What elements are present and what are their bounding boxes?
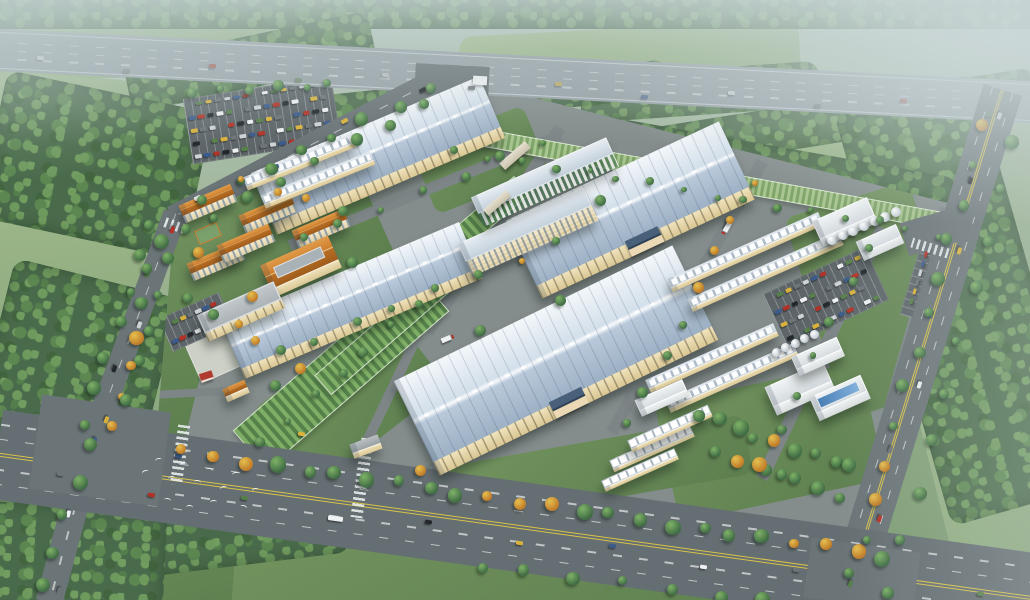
tree — [144, 220, 155, 231]
tree — [514, 498, 526, 510]
tree — [710, 246, 720, 256]
tree — [879, 461, 890, 472]
tree — [415, 465, 426, 476]
silo-tank — [827, 235, 837, 245]
tree — [710, 446, 721, 457]
tree — [478, 563, 488, 573]
tree — [667, 584, 678, 595]
tree — [566, 572, 580, 586]
tree — [752, 180, 759, 187]
silo-tank — [781, 343, 790, 352]
tree — [450, 146, 459, 155]
tree — [595, 195, 606, 206]
tree — [679, 321, 687, 329]
tree — [752, 457, 767, 472]
bird — [168, 476, 175, 482]
tree — [296, 145, 307, 156]
tree — [869, 493, 882, 506]
tree — [970, 281, 983, 294]
tree — [789, 539, 799, 549]
tree — [731, 455, 744, 468]
tree — [126, 361, 136, 371]
tree — [300, 233, 308, 241]
tree — [485, 156, 491, 162]
tree — [462, 172, 471, 181]
tree — [820, 538, 832, 550]
tree — [176, 444, 186, 454]
tree — [295, 363, 306, 374]
tree — [87, 381, 101, 395]
tree — [646, 177, 654, 185]
tree — [247, 291, 258, 302]
car — [986, 112, 993, 116]
bird — [194, 480, 202, 486]
tree — [351, 133, 364, 146]
tree — [555, 295, 566, 306]
tree — [425, 482, 438, 495]
tree — [518, 564, 530, 576]
car — [793, 567, 800, 572]
tree — [889, 422, 898, 431]
bird — [186, 505, 193, 510]
tree — [773, 204, 782, 213]
car — [209, 64, 216, 68]
tree — [618, 576, 627, 585]
tree — [134, 249, 147, 262]
silo-tank — [810, 330, 819, 339]
tree — [996, 184, 1005, 193]
forest — [0, 0, 1030, 29]
tree — [936, 234, 943, 241]
silo-tank — [891, 207, 901, 217]
car — [425, 519, 432, 524]
tree — [849, 277, 858, 286]
car — [728, 90, 735, 94]
car — [977, 591, 984, 596]
tree — [739, 196, 747, 204]
tree — [495, 151, 505, 161]
tree — [144, 326, 154, 336]
tree — [310, 157, 319, 166]
tree — [276, 345, 287, 356]
tree — [755, 592, 770, 600]
tree — [210, 214, 218, 222]
tree — [431, 284, 439, 292]
tree — [1005, 135, 1018, 148]
tree — [519, 258, 525, 264]
tree — [715, 591, 728, 600]
tree — [358, 347, 368, 357]
car — [123, 69, 130, 73]
tree — [359, 472, 375, 488]
car — [57, 471, 64, 476]
truck-cab — [450, 334, 454, 339]
tree — [723, 529, 736, 542]
aerial-site-render — [0, 0, 1030, 600]
tree — [245, 86, 254, 95]
tree — [588, 168, 594, 174]
tree — [193, 247, 204, 258]
tree — [540, 140, 547, 147]
tree — [388, 321, 395, 328]
bird — [164, 497, 172, 503]
tree — [338, 206, 348, 216]
tree — [285, 418, 291, 424]
tree — [768, 434, 781, 447]
car — [555, 82, 562, 86]
car — [609, 543, 616, 548]
tree — [238, 176, 244, 182]
tree — [385, 120, 396, 131]
silo-tank — [859, 221, 869, 231]
tree — [931, 272, 945, 286]
tree — [665, 520, 681, 536]
tree — [154, 234, 169, 249]
silo-tank — [800, 334, 809, 343]
tree — [120, 394, 132, 406]
car — [900, 99, 907, 103]
silo-tank — [838, 230, 848, 240]
bird — [180, 462, 187, 467]
silo-tank — [791, 339, 800, 348]
car — [382, 73, 389, 77]
tree — [733, 420, 749, 436]
toll-booth — [473, 75, 487, 85]
tree — [340, 369, 349, 378]
tree — [265, 163, 278, 176]
tree — [73, 475, 88, 490]
tree — [810, 352, 817, 359]
tree — [187, 88, 198, 99]
tree — [777, 425, 787, 435]
car — [295, 77, 302, 81]
tree — [162, 252, 174, 264]
tree — [347, 257, 358, 268]
car — [241, 495, 248, 500]
tree — [97, 352, 109, 364]
tree — [788, 443, 803, 458]
tree — [976, 119, 989, 132]
bird — [210, 500, 217, 505]
tree — [482, 491, 492, 501]
car — [175, 453, 182, 458]
tree — [84, 438, 97, 451]
silo-tank — [772, 348, 781, 357]
car — [516, 540, 523, 545]
silo-tank — [848, 226, 858, 236]
tree — [302, 194, 311, 203]
tree — [207, 451, 219, 463]
car — [641, 95, 648, 99]
tree — [183, 293, 193, 303]
tree — [941, 233, 953, 245]
tree — [353, 317, 363, 327]
tree — [475, 325, 486, 336]
car — [148, 492, 155, 497]
road-intersection — [29, 394, 171, 506]
tree — [242, 191, 254, 203]
car — [37, 55, 44, 59]
tree — [811, 448, 821, 458]
tree — [926, 434, 938, 446]
car — [700, 564, 707, 569]
tree — [270, 380, 281, 391]
tree — [754, 529, 769, 544]
tree — [327, 134, 336, 143]
tree — [835, 493, 845, 503]
tree — [902, 226, 908, 232]
car — [813, 104, 820, 108]
tree — [378, 207, 384, 213]
tree — [914, 487, 928, 501]
tree — [235, 320, 243, 328]
tree — [612, 176, 619, 183]
tree — [637, 387, 648, 398]
tree — [983, 236, 994, 247]
tree — [808, 207, 814, 213]
tree — [304, 84, 311, 91]
tree — [448, 488, 463, 503]
tree — [154, 291, 162, 299]
